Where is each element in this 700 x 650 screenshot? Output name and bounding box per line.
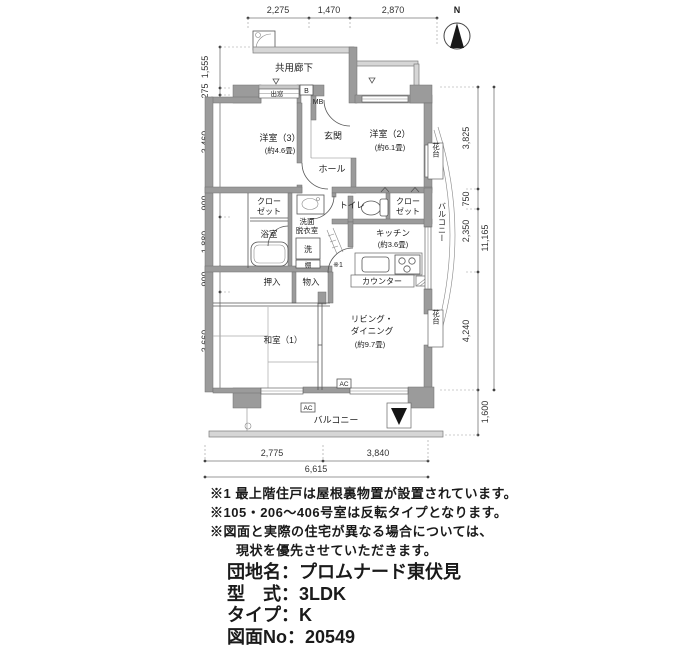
label-closet-right-1: クロー bbox=[396, 197, 420, 206]
dim-right-1: 3,825 bbox=[461, 127, 471, 150]
dim-right-total: 11,165 bbox=[480, 225, 490, 252]
dim-bottom-total: 6,615 bbox=[305, 464, 328, 474]
dim-right-4: 4,240 bbox=[461, 320, 471, 343]
label-storage: 物入 bbox=[302, 277, 320, 287]
note-line: ※105・206〜406号室は反転タイプとなります。 bbox=[210, 503, 517, 522]
label-meter-box: MB bbox=[313, 99, 324, 106]
dim-left-2: 275 bbox=[200, 83, 210, 98]
label-closet-left-1: クロー bbox=[257, 197, 281, 206]
floor-plan-drawing: 2,275 1,470 2,870 1,555 275 3,460 900 1,… bbox=[0, 0, 520, 480]
info-row-type: 型 式：3LDK bbox=[227, 584, 461, 606]
note-line: ※1 最上階住戸は屋根裏物置が設置されています。 bbox=[210, 484, 517, 503]
compass-n-label: N bbox=[454, 5, 461, 15]
label-ac-1: AC bbox=[339, 381, 348, 388]
dim-right-balcony: 1,600 bbox=[480, 401, 490, 424]
label-living-1: リビング・ bbox=[351, 314, 394, 324]
info-label: 団地名： bbox=[227, 562, 299, 582]
label-shelf: 棚 bbox=[305, 260, 312, 269]
dim-bottom-2: 3,840 bbox=[367, 448, 390, 458]
dim-top-1: 2,275 bbox=[267, 5, 290, 15]
label-note1-mark: ※1 bbox=[333, 262, 343, 269]
label-bay-window: 出窓 bbox=[271, 89, 285, 98]
dim-right-3: 2,350 bbox=[461, 220, 471, 243]
label-toilet: トイレ bbox=[339, 200, 365, 210]
info-row-zumen-no: 図面No：20549 bbox=[227, 627, 461, 649]
dim-bottom-1: 2,775 bbox=[261, 448, 284, 458]
label-western-room-2-size: (約6.1畳) bbox=[375, 142, 406, 152]
dim-top-2: 1,470 bbox=[318, 5, 341, 15]
label-japanese-room-1: 和室（1） bbox=[264, 335, 303, 345]
label-closet-right-2: ゼット bbox=[396, 206, 420, 216]
dim-right-2: 750 bbox=[461, 191, 471, 206]
label-flower-stand-lower: 花台 bbox=[431, 308, 440, 326]
label-closet-left-2: ゼット bbox=[257, 206, 281, 216]
label-western-room-3: 洋室（3） bbox=[259, 132, 300, 143]
label-washroom-2: 脱衣室 bbox=[296, 225, 319, 235]
label-hall: ホール bbox=[318, 164, 345, 174]
north-compass-icon: N bbox=[444, 5, 470, 49]
dim-left-1: 1,555 bbox=[200, 56, 210, 79]
label-western-room-2: 洋室（2） bbox=[369, 128, 410, 139]
label-b-box: B bbox=[304, 88, 309, 95]
plan-notes: ※1 最上階住戸は屋根裏物置が設置されています。 ※105・206〜406号室は… bbox=[210, 484, 517, 560]
label-counter: カウンター bbox=[362, 277, 402, 286]
info-value: 3LDK bbox=[299, 584, 346, 604]
label-washer: 洗 bbox=[304, 244, 312, 254]
info-value: プロムナード東伏見 bbox=[299, 562, 461, 582]
label-entrance: 玄関 bbox=[324, 130, 342, 141]
info-value: K bbox=[299, 605, 312, 625]
label-balcony-side: バルコニー bbox=[438, 202, 447, 242]
label-washroom-1: 洗面 bbox=[300, 216, 315, 226]
info-label: タイプ： bbox=[227, 605, 299, 625]
label-kitchen-size: (約3.6畳) bbox=[378, 239, 409, 249]
info-label: 図面No： bbox=[227, 627, 305, 647]
dim-top-3: 2,870 bbox=[382, 5, 405, 15]
label-common-corridor: 共用廊下 bbox=[275, 62, 313, 74]
label-kitchen: キッチン bbox=[376, 228, 410, 238]
label-western-room-3-size: (約4.6畳) bbox=[265, 145, 296, 155]
label-oshiire: 押入 bbox=[263, 277, 281, 287]
label-living-2: ダイニング bbox=[351, 326, 394, 336]
property-info: 団地名：プロムナード東伏見 型 式：3LDK タイプ：K 図面No：20549 bbox=[227, 562, 461, 648]
label-ac-2: AC bbox=[303, 405, 312, 412]
label-flower-stand-upper: 花台 bbox=[431, 141, 440, 159]
label-balcony-bottom: バルコニー bbox=[314, 415, 359, 425]
label-living-size: (約9.7畳) bbox=[355, 339, 386, 349]
note-line: ※図面と実際の住宅が異なる場合については、 bbox=[210, 522, 517, 541]
info-row-taipu: タイプ：K bbox=[227, 605, 461, 627]
label-bathroom: 浴室 bbox=[260, 229, 278, 239]
info-value: 20549 bbox=[305, 627, 355, 647]
info-label: 型 式： bbox=[227, 584, 299, 604]
floor-plan-page: 2,275 1,470 2,870 1,555 275 3,460 900 1,… bbox=[0, 0, 700, 650]
info-row-danchi: 団地名：プロムナード東伏見 bbox=[227, 562, 461, 584]
note-line: 現状を優先させていただきます。 bbox=[210, 541, 517, 560]
